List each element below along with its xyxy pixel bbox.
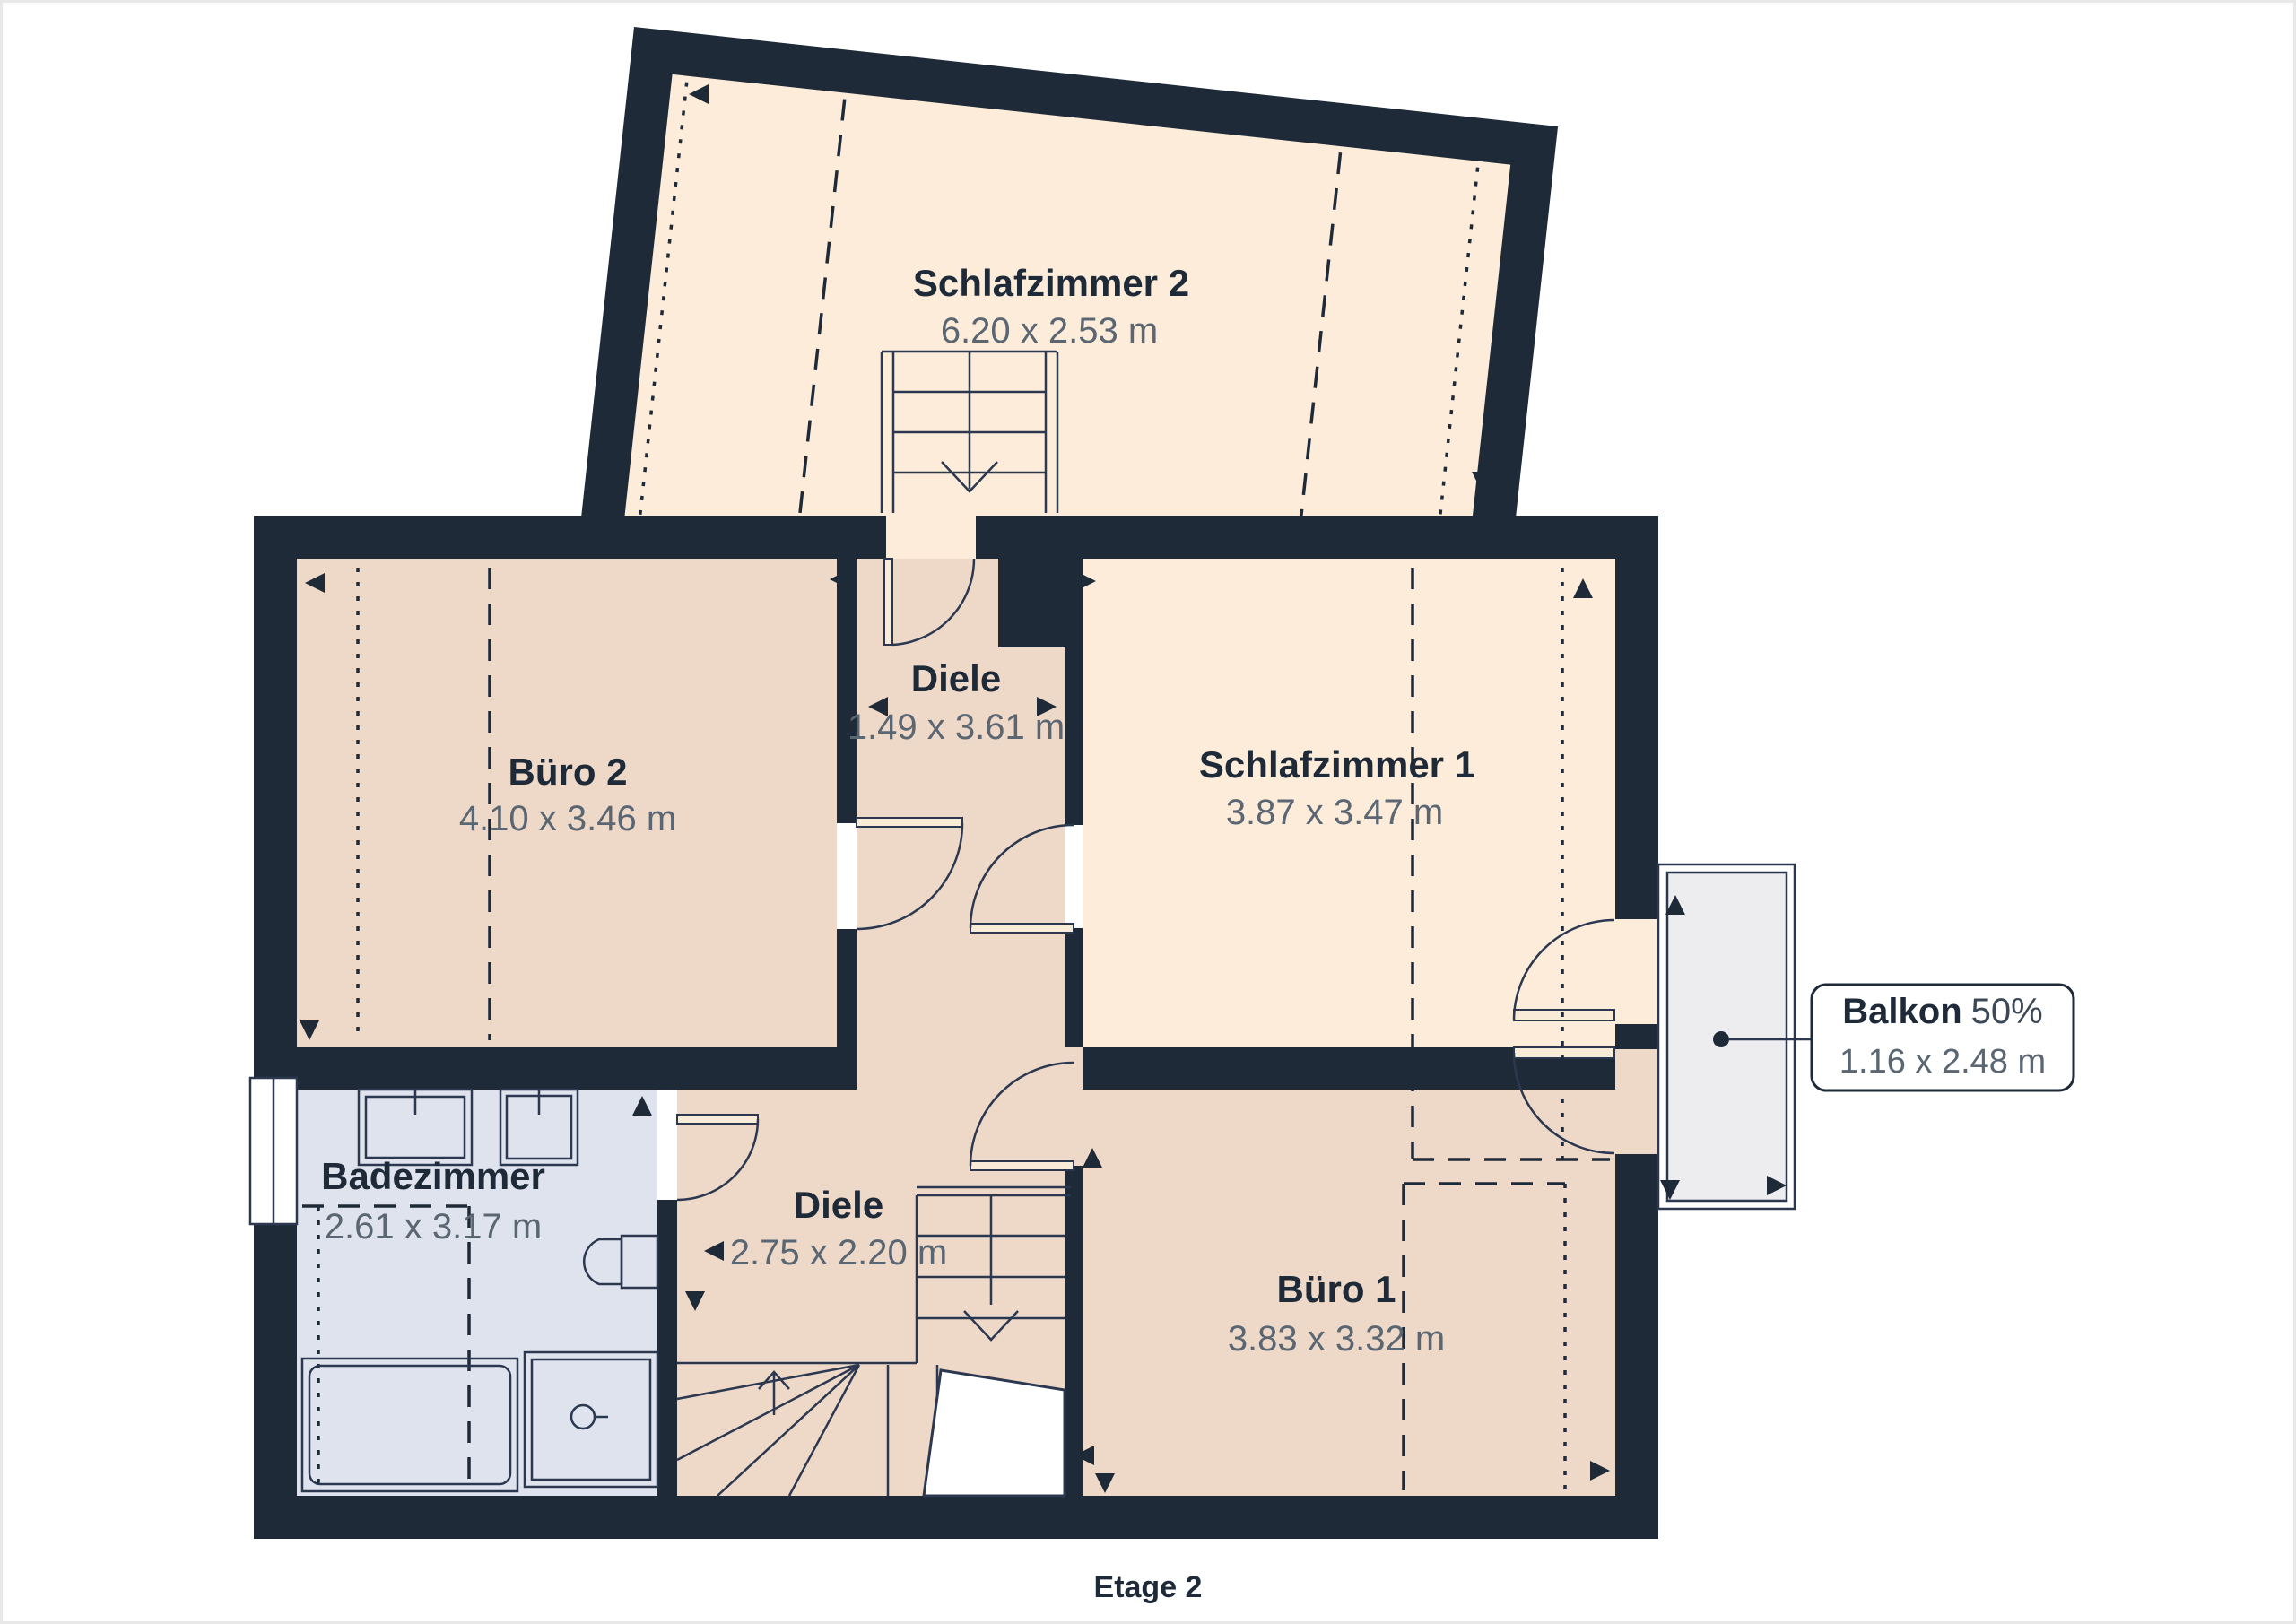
partition-buero2-diele-lower [837, 929, 857, 1047]
wall-right-stub [1615, 1024, 1658, 1049]
buero-2-name: Büro 2 [508, 751, 627, 793]
partition-bad-diele [657, 1200, 677, 1496]
divider-wall-left [297, 1047, 857, 1090]
buero-1-door-opening-floor [1065, 1047, 1083, 1166]
diele-upper-name: Diele [911, 657, 1001, 699]
balcony-callout-dims: 1.16 x 2.48 m [1839, 1043, 2046, 1081]
badezimmer-name: Badezimmer [321, 1155, 545, 1197]
badezimmer-floor [297, 1090, 657, 1496]
schlafzimmer-2-dims: 6.20 x 2.53 m [941, 311, 1158, 351]
balcony-door-upper-opening [1615, 919, 1658, 1024]
partition-buero2-diele-upper [837, 559, 857, 823]
corridor-passage-floor [857, 1047, 1065, 1090]
schlafzimmer-1-dims: 3.87 x 3.47 m [1226, 793, 1443, 832]
balcony-door-lower-opening [1615, 1049, 1658, 1154]
callout-anchor-dot [1713, 1031, 1729, 1047]
wall-right-lower [1615, 1154, 1658, 1539]
floor-plan-canvas: Balkon50% 1.16 x 2.48 m [0, 0, 2296, 1624]
wall-left [254, 516, 297, 1539]
floor-label: Etage 2 [1094, 1570, 1203, 1604]
partition-diele-schlafzimmer1-upper [1065, 559, 1083, 825]
balcony-callout: Balkon50% 1.16 x 2.48 m [1812, 985, 2074, 1090]
diele-lower-dims: 2.75 x 2.20 m [730, 1233, 947, 1272]
bathroom-window [250, 1078, 297, 1224]
partition-diele-schlafzimmer1-lower [1065, 928, 1083, 1047]
wall-chunk-diele-top [998, 559, 1065, 647]
balcony-callout-title: Balkon50% [1842, 992, 2042, 1031]
schlafzimmer-1-name: Schlafzimmer 1 [1199, 743, 1475, 786]
balcony [1658, 864, 1812, 1209]
buero-2-dims: 4.10 x 3.46 m [459, 799, 676, 838]
buero-1-dims: 3.83 x 3.32 m [1228, 1319, 1445, 1359]
schlafzimmer-2-name: Schlafzimmer 2 [913, 262, 1189, 304]
stairs-floor-opening [924, 1370, 1065, 1496]
partition-diele-buero1 [1065, 1166, 1083, 1496]
diele-lower-name: Diele [794, 1184, 883, 1226]
floor-plan-page: Balkon50% 1.16 x 2.48 m [0, 0, 2296, 1624]
wall-bottom [254, 1496, 1658, 1539]
wall-right-upper [1615, 516, 1658, 919]
buero-1-name: Büro 1 [1276, 1268, 1396, 1310]
stair-landing [886, 516, 976, 559]
badezimmer-dims: 2.61 x 3.17 m [325, 1207, 542, 1246]
diele-upper-dims: 1.49 x 3.61 m [848, 708, 1065, 747]
